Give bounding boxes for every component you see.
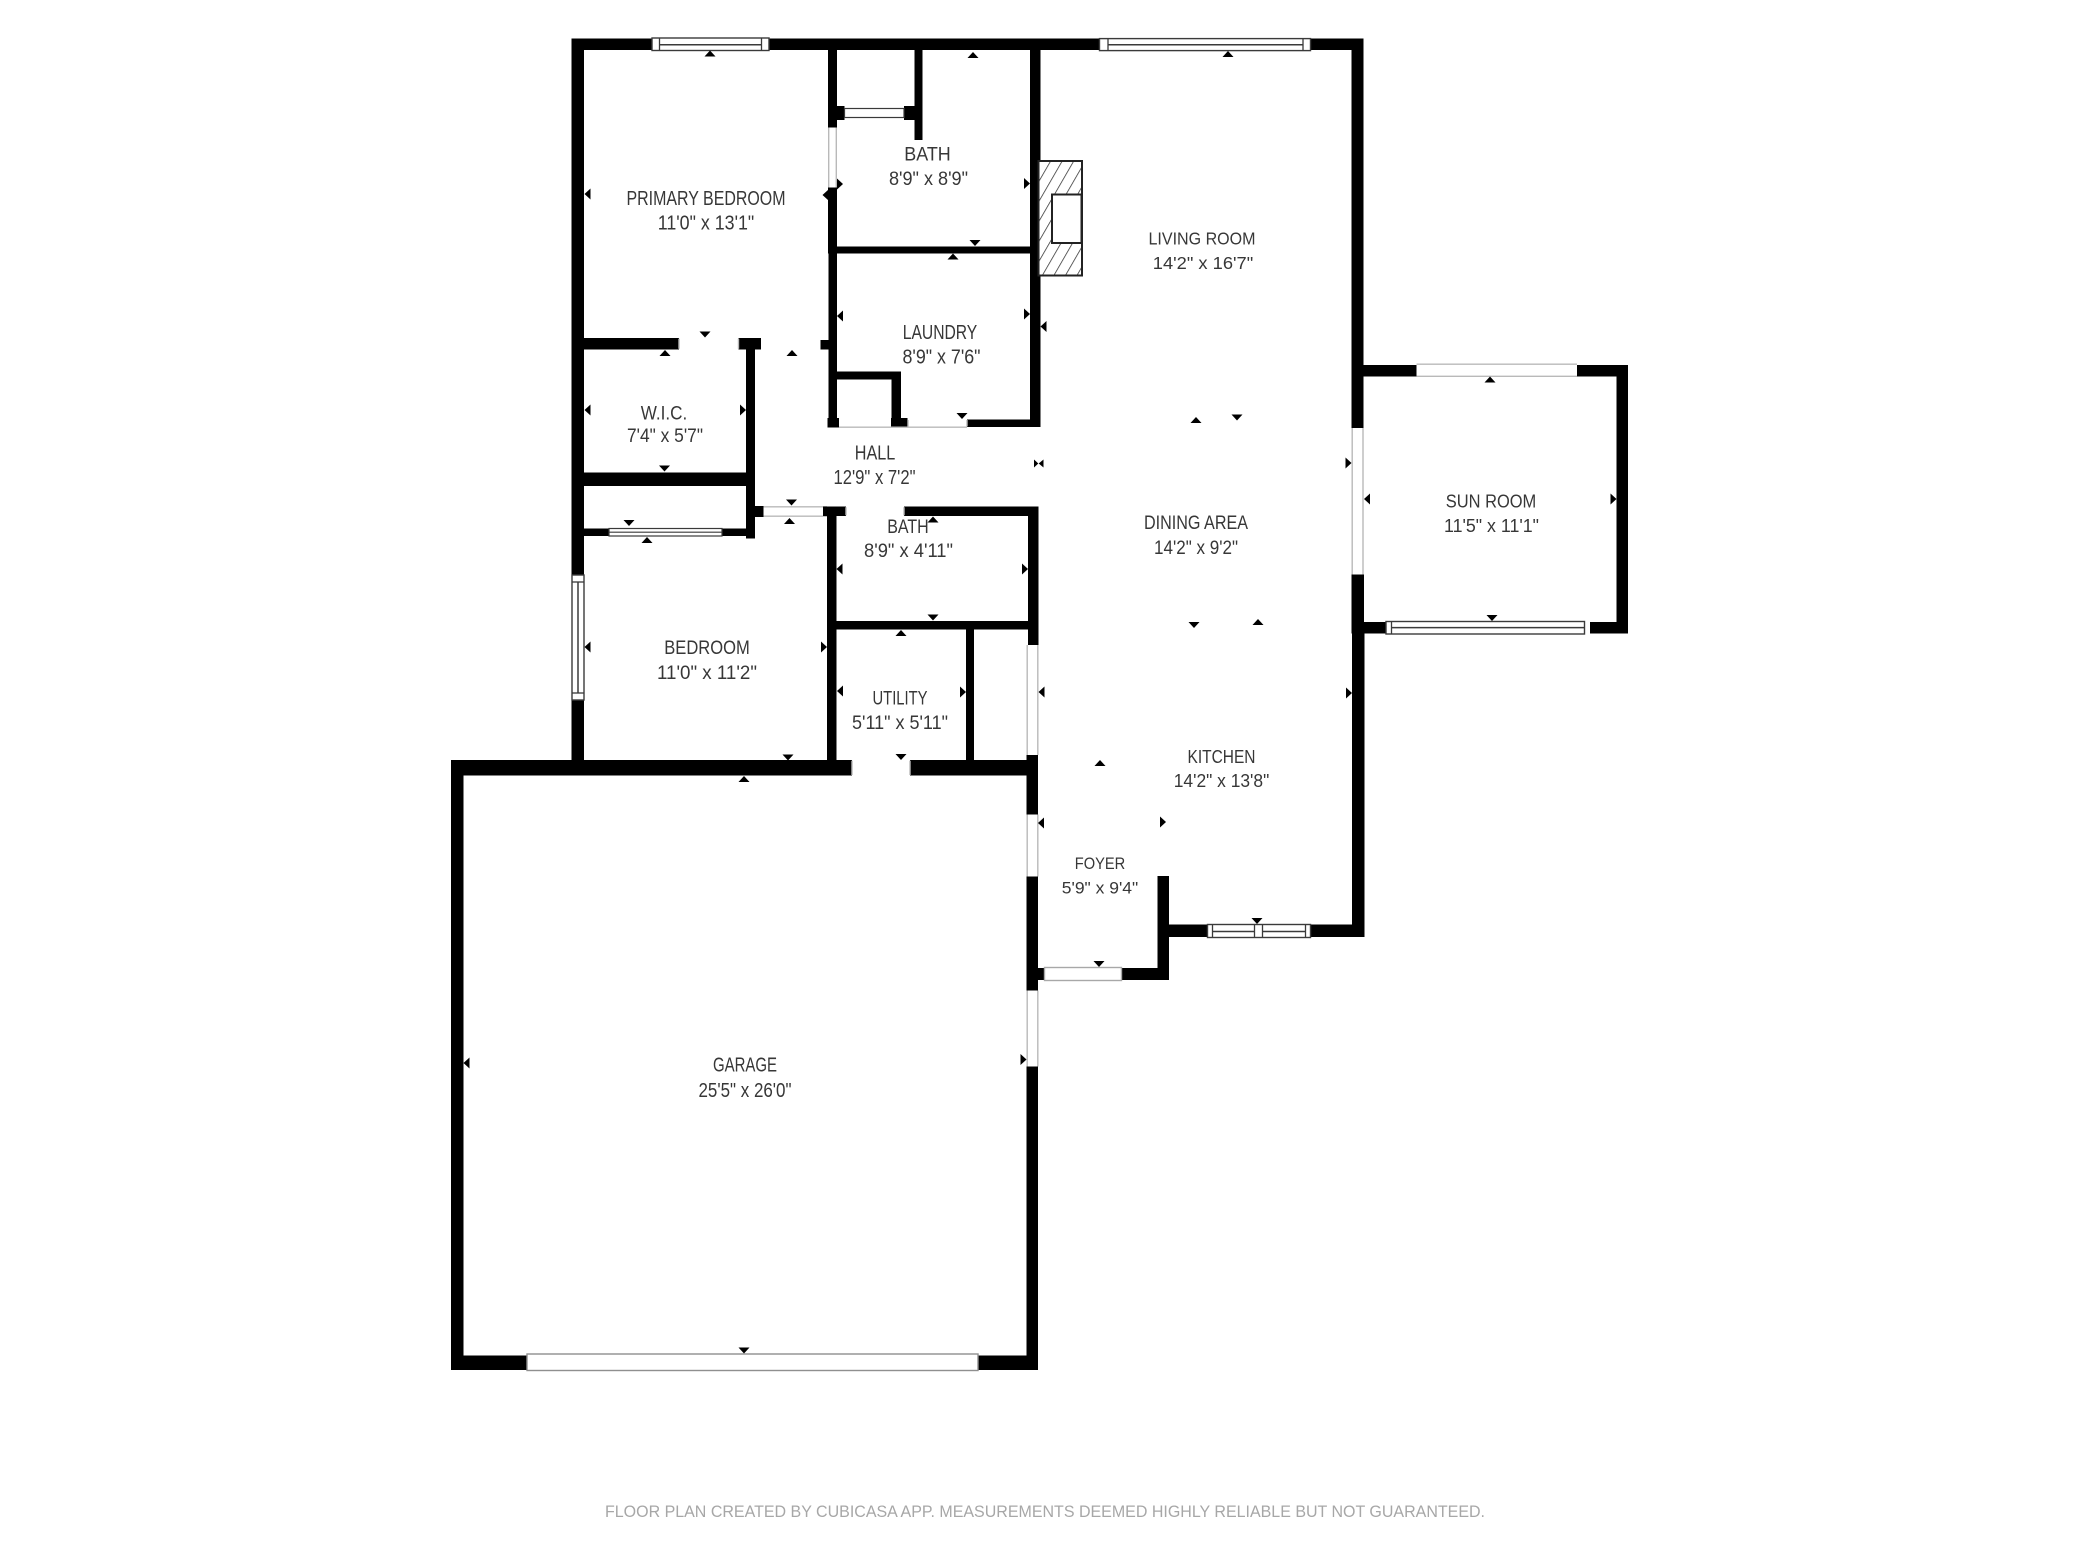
svg-text:14'2" x 16'7": 14'2" x 16'7" [1153, 253, 1254, 273]
svg-text:BATH: BATH [904, 145, 951, 166]
svg-text:11'5" x 11'1": 11'5" x 11'1" [1444, 516, 1539, 536]
svg-text:5'9" x 9'4": 5'9" x 9'4" [1062, 880, 1139, 898]
svg-text:UTILITY: UTILITY [873, 689, 928, 710]
svg-text:14'2" x 9'2": 14'2" x 9'2" [1154, 538, 1238, 559]
svg-text:BEDROOM: BEDROOM [664, 638, 750, 659]
svg-text:14'2" x 13'8": 14'2" x 13'8" [1174, 771, 1270, 791]
svg-text:25'5" x 26'0": 25'5" x 26'0" [699, 1079, 792, 1102]
svg-text:8'9" x 4'11": 8'9" x 4'11" [864, 540, 953, 562]
svg-text:FOYER: FOYER [1075, 855, 1126, 873]
svg-text:HALL: HALL [855, 443, 896, 465]
svg-text:11'0" x 13'1": 11'0" x 13'1" [658, 212, 755, 235]
svg-text:8'9" x 8'9": 8'9" x 8'9" [889, 169, 968, 190]
svg-text:LAUNDRY: LAUNDRY [903, 322, 978, 344]
svg-text:GARAGE: GARAGE [713, 1054, 777, 1077]
svg-text:11'0" x 11'2": 11'0" x 11'2" [657, 663, 757, 684]
svg-text:LIVING ROOM: LIVING ROOM [1149, 229, 1256, 249]
svg-text:7'4" x 5'7": 7'4" x 5'7" [627, 426, 703, 447]
svg-text:BATH: BATH [887, 516, 929, 538]
svg-text:5'11" x 5'11": 5'11" x 5'11" [852, 713, 948, 734]
svg-text:FLOOR PLAN CREATED BY CUBICASA: FLOOR PLAN CREATED BY CUBICASA APP. MEAS… [605, 1502, 1485, 1521]
svg-text:12'9" x 7'2": 12'9" x 7'2" [834, 467, 916, 489]
svg-text:DINING AREA: DINING AREA [1144, 513, 1248, 534]
svg-text:PRIMARY BEDROOM: PRIMARY BEDROOM [627, 187, 786, 210]
svg-text:KITCHEN: KITCHEN [1188, 747, 1256, 767]
svg-text:W.I.C.: W.I.C. [641, 404, 688, 425]
svg-text:SUN ROOM: SUN ROOM [1446, 492, 1537, 512]
svg-text:8'9" x 7'6": 8'9" x 7'6" [903, 347, 981, 369]
